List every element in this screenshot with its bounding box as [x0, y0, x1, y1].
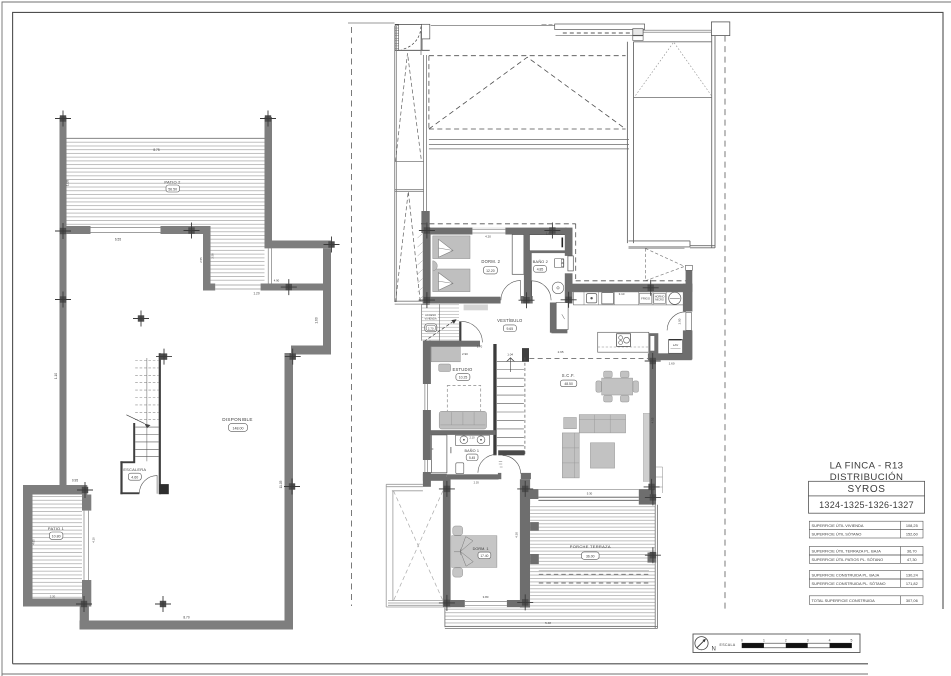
svg-text:5.45: 5.45	[469, 456, 475, 460]
svg-text:171,82: 171,82	[906, 581, 918, 586]
svg-text:130,24: 130,24	[906, 573, 919, 578]
svg-text:N: N	[712, 647, 716, 653]
svg-text:LA FINCA - R13: LA FINCA - R13	[830, 461, 904, 472]
svg-text:2: 2	[785, 639, 787, 643]
svg-text:2.90: 2.90	[462, 352, 468, 356]
svg-text:10.25: 10.25	[459, 376, 468, 380]
svg-text:ACCESO: ACCESO	[425, 313, 436, 317]
svg-text:4.65: 4.65	[32, 539, 36, 545]
svg-text:1.10: 1.10	[54, 373, 58, 379]
svg-text:SUPERFICIE CONSTRUIDA PL. SÓTA: SUPERFICIE CONSTRUIDA PL. SÓTANO	[812, 581, 886, 586]
svg-text:1.60: 1.60	[669, 362, 675, 366]
svg-text:5: 5	[851, 639, 853, 643]
svg-text:17.40: 17.40	[480, 554, 488, 558]
svg-text:48.50: 48.50	[564, 382, 573, 386]
svg-text:MICRO: MICRO	[655, 298, 664, 302]
svg-text:S.C.F.: S.C.F.	[562, 373, 575, 378]
svg-text:2.10: 2.10	[469, 435, 475, 439]
svg-text:12.20: 12.20	[486, 269, 495, 273]
svg-text:6.55: 6.55	[115, 237, 121, 241]
svg-text:0.95: 0.95	[72, 478, 78, 482]
svg-text:PORCHE TERRAZA: PORCHE TERRAZA	[570, 544, 611, 549]
svg-text:4.20: 4.20	[485, 235, 491, 239]
svg-text:4.60: 4.60	[131, 475, 138, 479]
svg-text:1.08: 1.08	[66, 180, 70, 186]
svg-text:2.95: 2.95	[558, 350, 564, 354]
svg-text:108,25: 108,25	[906, 523, 918, 528]
svg-text:3.50: 3.50	[211, 253, 215, 259]
svg-text:SYROS: SYROS	[847, 484, 885, 495]
svg-text:3.80: 3.80	[483, 595, 489, 599]
svg-text:4.85: 4.85	[537, 268, 544, 272]
svg-text:BAÑO 1: BAÑO 1	[465, 448, 480, 453]
svg-text:ESCALA: ESCALA	[720, 643, 736, 647]
svg-text:1.60: 1.60	[315, 317, 319, 323]
svg-text:307,06: 307,06	[906, 598, 918, 603]
svg-text:3.10: 3.10	[619, 292, 625, 296]
svg-text:2.20: 2.20	[50, 594, 56, 598]
svg-text:8.75: 8.75	[153, 148, 159, 152]
svg-text:10.80: 10.80	[52, 535, 61, 539]
svg-text:SUPERFICIE ÚTIL TERRAZA PL. BA: SUPERFICIE ÚTIL TERRAZA PL. BAJA	[812, 549, 882, 554]
svg-text:SUPERFICIE ÚTIL PATIOS PL. SÓT: SUPERFICIE ÚTIL PATIOS PL. SÓTANO	[812, 557, 884, 562]
svg-text:56.50: 56.50	[168, 187, 177, 191]
svg-text:2.70: 2.70	[428, 326, 434, 330]
svg-text:ESCALERA: ESCALERA	[123, 467, 146, 472]
svg-text:PATIO 1: PATIO 1	[48, 526, 65, 531]
svg-text:1324-1325-1326-1327: 1324-1325-1326-1327	[819, 500, 914, 510]
svg-text:2.55: 2.55	[199, 257, 203, 263]
svg-text:47,30: 47,30	[907, 557, 918, 562]
svg-text:VIVIENDA: VIVIENDA	[425, 316, 437, 320]
svg-text:0: 0	[741, 639, 743, 643]
svg-text:4: 4	[829, 639, 831, 643]
svg-text:SUPERFICIE ÚTIL SÓTANO: SUPERFICIE ÚTIL SÓTANO	[812, 532, 862, 537]
svg-text:SUPERFICIE CONSTRUIDA PL. BAJA: SUPERFICIE CONSTRUIDA PL. BAJA	[812, 573, 880, 578]
svg-text:36,70: 36,70	[907, 549, 918, 554]
svg-text:1.04: 1.04	[507, 352, 513, 356]
svg-text:4.30: 4.30	[514, 532, 518, 538]
svg-text:11.05: 11.05	[279, 480, 283, 488]
svg-text:4.10: 4.10	[92, 537, 96, 543]
svg-text:1: 1	[763, 639, 765, 643]
svg-text:5.30: 5.30	[587, 492, 593, 496]
svg-text:DISPONIBLE: DISPONIBLE	[222, 417, 253, 422]
svg-text:DORM. 1: DORM. 1	[473, 547, 489, 551]
svg-text:FRIGO: FRIGO	[641, 297, 651, 301]
svg-text:36.00: 36.00	[586, 554, 595, 558]
svg-text:5.48: 5.48	[545, 621, 551, 625]
svg-text:SUPERFICIE ÚTIL VIVIENDA: SUPERFICIE ÚTIL VIVIENDA	[812, 523, 864, 528]
svg-text:3: 3	[807, 639, 809, 643]
svg-text:PATIO 2: PATIO 2	[164, 180, 181, 185]
svg-text:148.00: 148.00	[233, 426, 244, 430]
svg-text:2.03: 2.03	[474, 481, 480, 485]
svg-text:VESTÍBULO: VESTÍBULO	[497, 318, 523, 323]
svg-text:ESTUDIO: ESTUDIO	[452, 367, 473, 372]
svg-text:4.90: 4.90	[274, 279, 280, 283]
svg-text:8.70: 8.70	[183, 615, 189, 619]
svg-text:2.00: 2.00	[678, 318, 682, 324]
svg-text:9.65: 9.65	[506, 327, 513, 331]
svg-text:1.70: 1.70	[477, 345, 483, 349]
svg-text:DORM. 2: DORM. 2	[481, 259, 500, 264]
svg-text:4.55: 4.55	[651, 417, 655, 423]
svg-text:TOTAL SUPERFICIE CONSTRUIDA: TOTAL SUPERFICIE CONSTRUIDA	[812, 598, 876, 603]
svg-text:1.20: 1.20	[253, 291, 259, 295]
svg-text:LAV: LAV	[673, 343, 678, 347]
svg-text:152,60: 152,60	[906, 532, 919, 537]
svg-text:BAÑO 2: BAÑO 2	[533, 259, 549, 264]
